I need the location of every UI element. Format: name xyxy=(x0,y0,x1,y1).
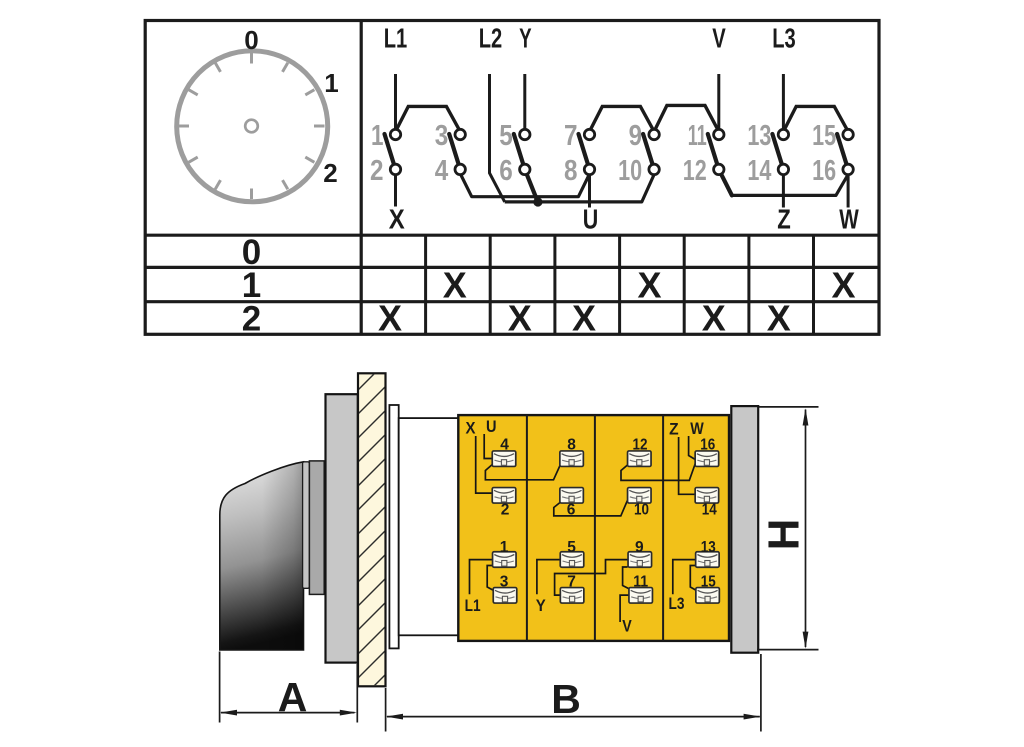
svg-text:B: B xyxy=(551,676,581,722)
svg-text:L3: L3 xyxy=(669,595,685,613)
svg-text:13: 13 xyxy=(747,120,771,152)
svg-text:1: 1 xyxy=(324,68,338,98)
svg-text:0: 0 xyxy=(244,25,258,55)
svg-text:2: 2 xyxy=(370,155,384,187)
svg-text:X: X xyxy=(767,297,791,338)
svg-text:9: 9 xyxy=(635,539,644,556)
svg-text:11: 11 xyxy=(633,573,648,590)
svg-text:6: 6 xyxy=(499,155,513,187)
svg-text:1: 1 xyxy=(371,120,384,152)
svg-text:2: 2 xyxy=(242,300,261,339)
svg-text:L3: L3 xyxy=(772,23,796,54)
svg-text:4: 4 xyxy=(500,436,509,453)
svg-text:L1: L1 xyxy=(384,23,408,54)
svg-text:7: 7 xyxy=(564,120,578,152)
svg-text:3: 3 xyxy=(435,120,449,152)
svg-text:X: X xyxy=(637,265,661,306)
svg-text:U: U xyxy=(486,418,497,436)
svg-text:3: 3 xyxy=(500,573,509,590)
svg-text:V: V xyxy=(712,23,726,54)
svg-text:W: W xyxy=(839,204,859,235)
svg-text:5: 5 xyxy=(499,120,513,152)
svg-text:4: 4 xyxy=(435,155,449,187)
svg-text:15: 15 xyxy=(701,573,716,590)
svg-text:X: X xyxy=(466,419,476,437)
svg-text:10: 10 xyxy=(618,155,642,187)
svg-text:X: X xyxy=(572,297,596,338)
svg-text:12: 12 xyxy=(683,155,707,187)
svg-text:X: X xyxy=(378,297,402,338)
svg-text:6: 6 xyxy=(567,502,576,519)
svg-text:16: 16 xyxy=(812,155,836,187)
svg-text:X: X xyxy=(389,204,405,235)
svg-text:L1: L1 xyxy=(465,597,481,615)
svg-text:L2: L2 xyxy=(479,23,503,54)
svg-text:14: 14 xyxy=(702,502,717,519)
svg-text:Z: Z xyxy=(669,421,679,439)
svg-text:U: U xyxy=(583,204,599,235)
svg-text:X: X xyxy=(702,297,726,338)
svg-text:5: 5 xyxy=(567,539,576,556)
svg-text:W: W xyxy=(690,420,704,438)
svg-text:16: 16 xyxy=(700,436,715,453)
svg-text:14: 14 xyxy=(747,155,771,187)
svg-text:H: H xyxy=(760,519,809,551)
svg-text:12: 12 xyxy=(633,436,648,453)
svg-text:A: A xyxy=(278,674,308,720)
svg-text:7: 7 xyxy=(567,573,576,590)
svg-text:8: 8 xyxy=(564,155,578,187)
svg-text:15: 15 xyxy=(812,120,836,152)
svg-text:10: 10 xyxy=(634,502,649,519)
svg-text:Y: Y xyxy=(536,597,546,615)
svg-text:1: 1 xyxy=(500,539,509,556)
svg-text:11: 11 xyxy=(688,120,707,152)
svg-text:2: 2 xyxy=(501,502,510,519)
svg-text:X: X xyxy=(508,297,532,338)
svg-text:9: 9 xyxy=(629,120,643,152)
svg-text:8: 8 xyxy=(567,436,576,453)
svg-text:X: X xyxy=(831,265,855,306)
svg-text:X: X xyxy=(443,265,467,306)
svg-text:13: 13 xyxy=(701,539,716,556)
svg-text:2: 2 xyxy=(323,158,337,188)
svg-text:V: V xyxy=(622,618,632,636)
svg-text:Z: Z xyxy=(777,204,791,235)
svg-text:Y: Y xyxy=(519,23,532,54)
